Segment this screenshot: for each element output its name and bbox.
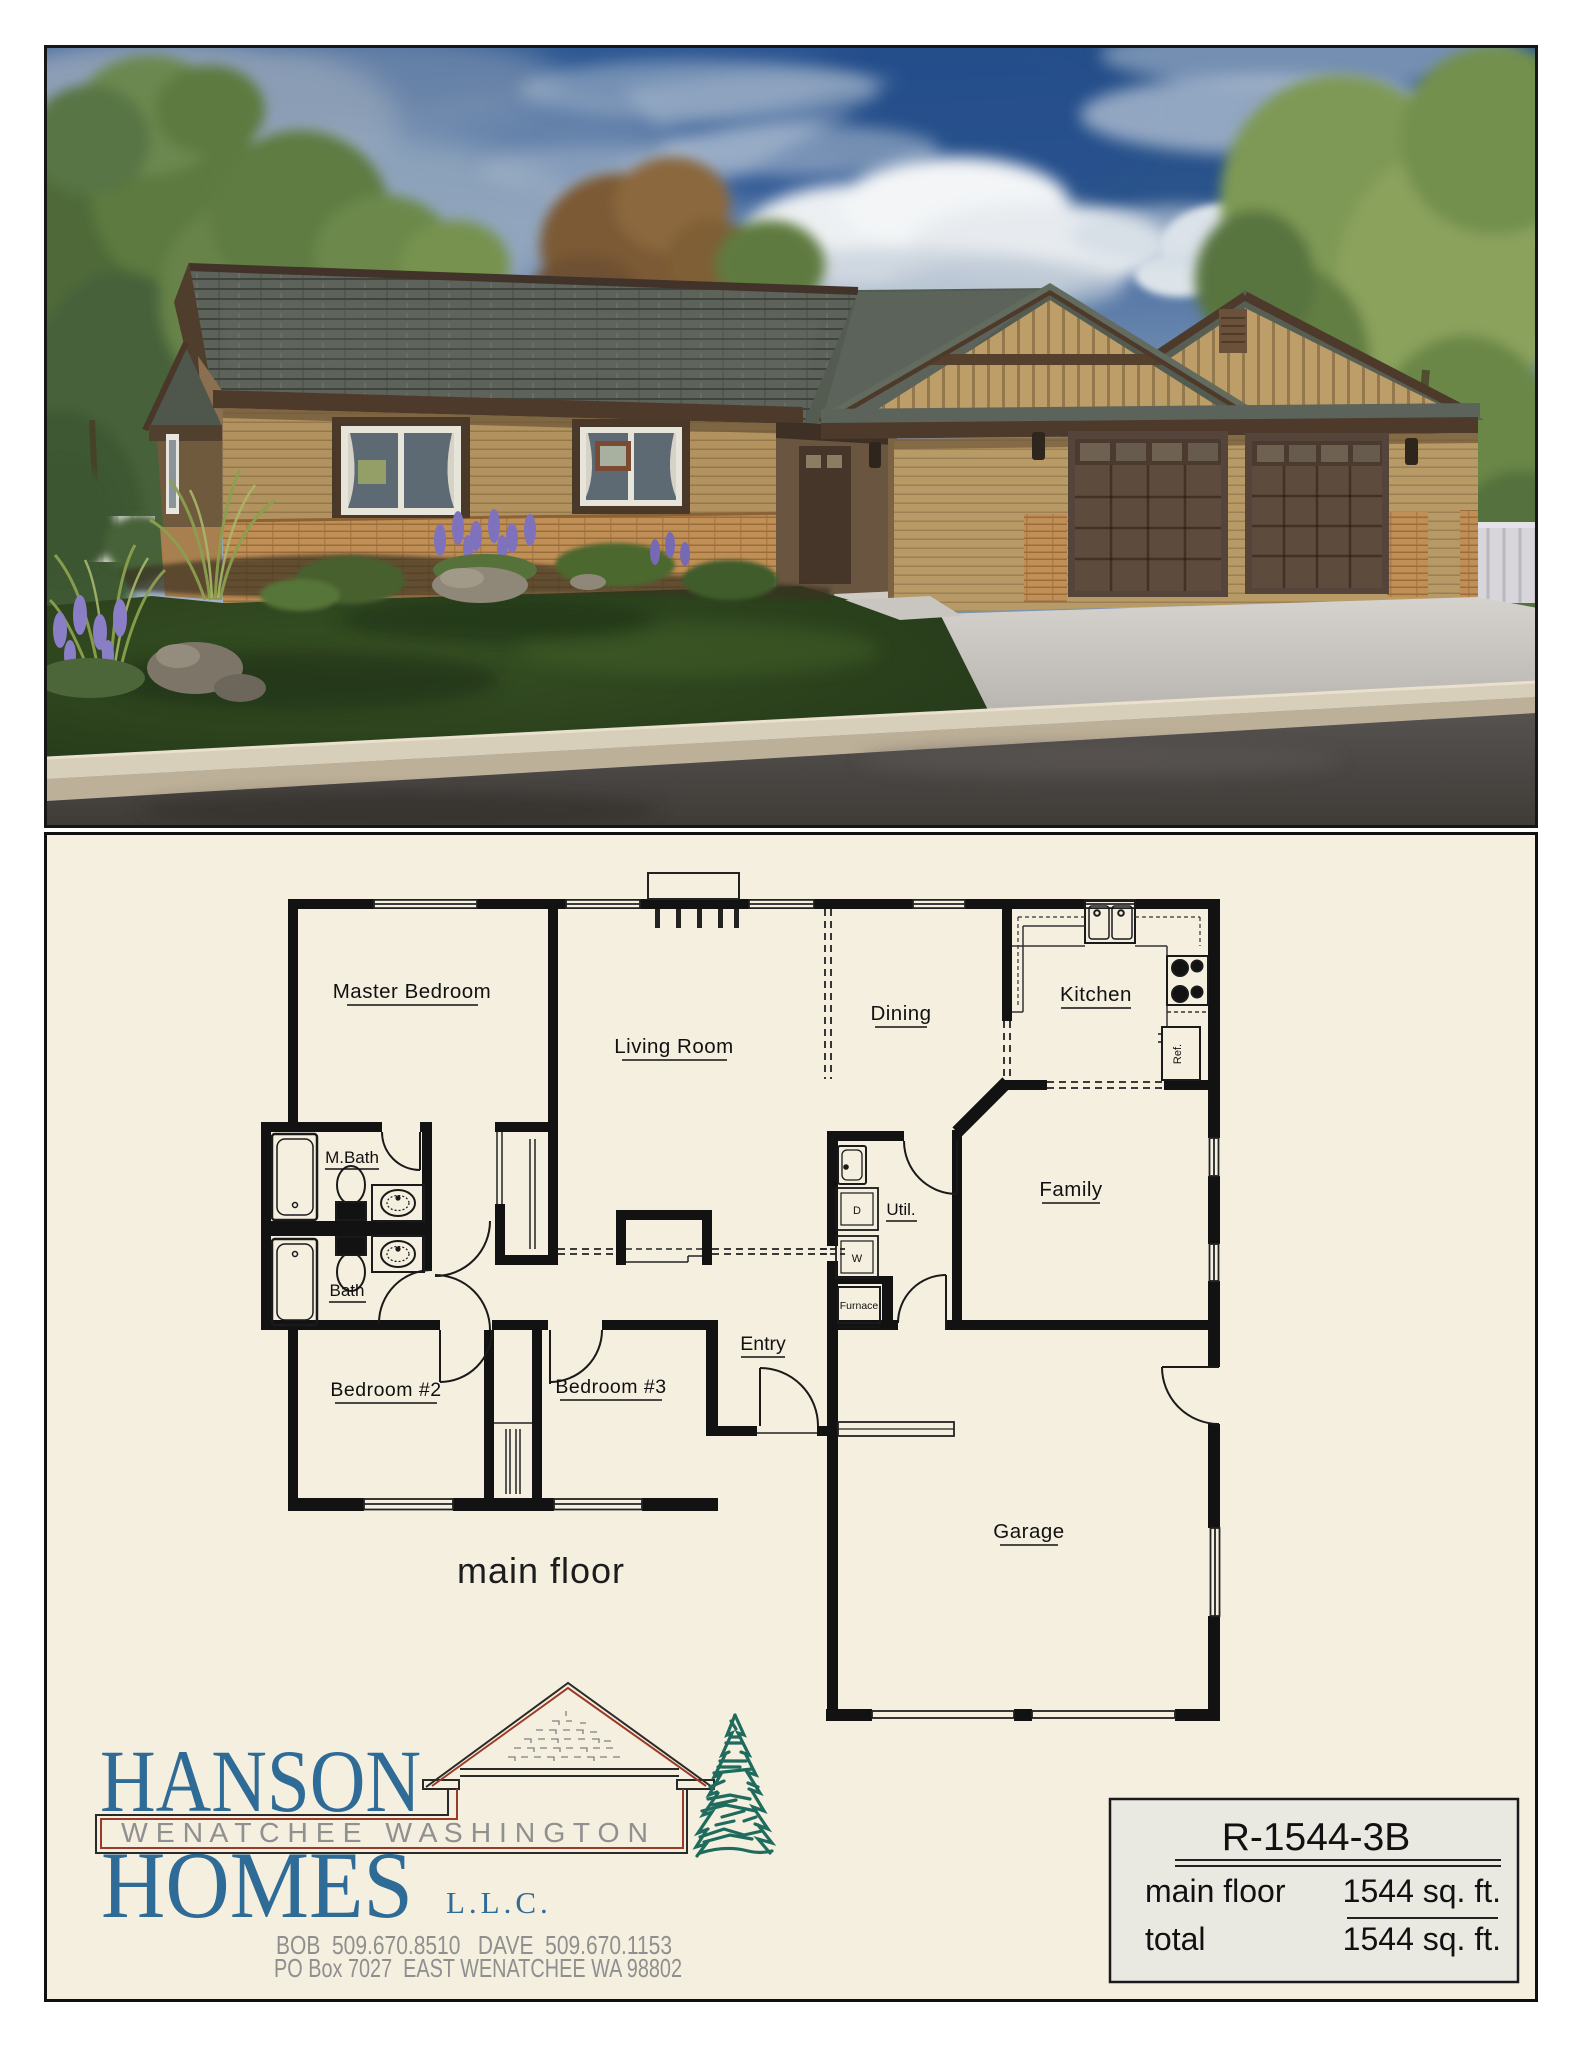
svg-text:Util.: Util. xyxy=(886,1200,915,1219)
svg-text:Bedroom #2: Bedroom #2 xyxy=(330,1379,441,1401)
svg-text:D: D xyxy=(853,1205,861,1217)
svg-text:R-1544-3B: R-1544-3B xyxy=(1222,1816,1411,1859)
svg-text:Kitchen: Kitchen xyxy=(1060,983,1132,1006)
svg-text:PO Box 7027 EAST WENATCHEE WA: PO Box 7027 EAST WENATCHEE WA 98802 xyxy=(274,1953,682,1983)
svg-text:total: total xyxy=(1145,1921,1205,1957)
svg-text:1544 sq. ft.: 1544 sq. ft. xyxy=(1343,1921,1501,1957)
svg-text:Bath: Bath xyxy=(330,1281,365,1300)
svg-text:L.L.C.: L.L.C. xyxy=(446,1885,552,1920)
svg-text:main floor: main floor xyxy=(457,1550,625,1591)
svg-text:1544 sq. ft.: 1544 sq. ft. xyxy=(1343,1873,1501,1909)
svg-text:HOMES: HOMES xyxy=(101,1832,413,1938)
svg-text:M.Bath: M.Bath xyxy=(325,1148,379,1167)
svg-text:main floor: main floor xyxy=(1145,1873,1286,1909)
svg-text:Ref.: Ref. xyxy=(1172,1044,1184,1064)
svg-text:Family: Family xyxy=(1039,1178,1103,1201)
svg-text:Bedroom #3: Bedroom #3 xyxy=(555,1376,666,1398)
svg-text:Furnace: Furnace xyxy=(840,1300,879,1312)
svg-text:Master Bedroom: Master Bedroom xyxy=(333,980,492,1003)
svg-text:Garage: Garage xyxy=(993,1520,1064,1543)
svg-text:W: W xyxy=(852,1253,863,1265)
svg-text:Living Room: Living Room xyxy=(614,1035,733,1058)
svg-text:Dining: Dining xyxy=(870,1002,931,1025)
svg-text:Entry: Entry xyxy=(740,1333,786,1355)
